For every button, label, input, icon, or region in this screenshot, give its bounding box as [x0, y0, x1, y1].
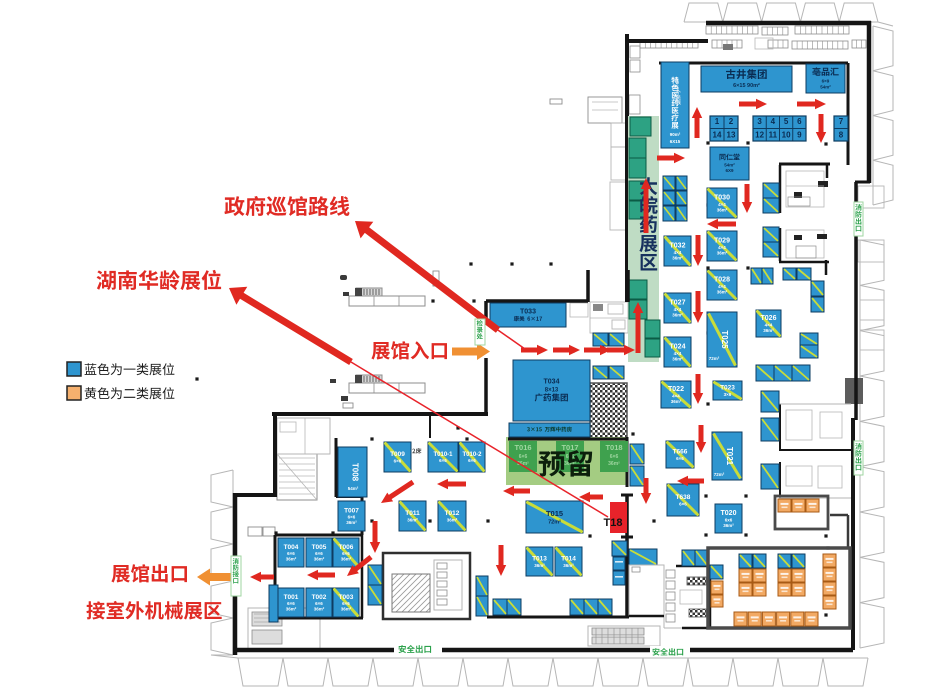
svg-text:T023: T023	[720, 385, 735, 392]
svg-text:6: 6	[797, 117, 802, 126]
svg-text:36m²: 36m²	[723, 523, 734, 528]
svg-text:T010-1: T010-1	[433, 452, 453, 458]
svg-text:4×4: 4×4	[674, 307, 682, 312]
svg-text:36m²: 36m²	[534, 563, 545, 568]
svg-text:36m²: 36m²	[717, 251, 728, 256]
svg-text:36m²: 36m²	[672, 357, 683, 362]
svg-text:T030: T030	[714, 194, 730, 201]
svg-text:72m²: 72m²	[548, 518, 561, 525]
svg-text:T024: T024	[670, 343, 686, 350]
svg-text:T003: T003	[339, 594, 354, 601]
svg-text:54m²: 54m²	[724, 162, 735, 167]
svg-text:36m²: 36m²	[346, 520, 357, 525]
svg-text:6×6: 6×6	[394, 458, 402, 463]
svg-text:T014: T014	[561, 556, 576, 563]
svg-text:T18: T18	[604, 517, 623, 529]
svg-text:T034: T034	[544, 379, 560, 386]
svg-text:2: 2	[729, 117, 734, 126]
svg-text:5: 5	[784, 117, 789, 126]
svg-text:6×6: 6×6	[287, 551, 295, 556]
svg-text:54m²: 54m²	[820, 84, 831, 89]
svg-text:T005: T005	[312, 544, 327, 551]
svg-text:36m²: 36m²	[341, 607, 352, 612]
svg-text:6×6: 6×6	[287, 601, 295, 606]
svg-text:6×9: 6×9	[822, 79, 830, 84]
svg-text:T029: T029	[714, 237, 730, 244]
svg-text:36m²: 36m²	[286, 607, 297, 612]
svg-text:6×6: 6×6	[610, 454, 619, 460]
svg-text:4×4: 4×4	[765, 322, 773, 327]
svg-text:T018: T018	[605, 443, 622, 452]
svg-text:36m²: 36m²	[563, 563, 574, 568]
svg-text:T001: T001	[284, 594, 299, 601]
svg-text:T015: T015	[546, 509, 563, 518]
svg-text:4×4: 4×4	[718, 245, 726, 250]
svg-text:T027: T027	[670, 299, 686, 306]
svg-text:T016: T016	[514, 443, 531, 452]
svg-text:6×6: 6×6	[676, 456, 684, 461]
svg-text:T032: T032	[670, 242, 686, 249]
svg-text:3×6: 3×6	[724, 392, 732, 397]
svg-text:T010-2: T010-2	[462, 452, 482, 458]
svg-text:3: 3	[757, 117, 762, 126]
svg-text:72m²: 72m²	[709, 356, 720, 361]
svg-text:36m²: 36m²	[672, 313, 683, 318]
svg-text:36m²: 36m²	[314, 557, 325, 562]
svg-text:6×6: 6×6	[679, 501, 687, 506]
svg-text:6×6: 6×6	[348, 515, 356, 520]
svg-text:36m²: 36m²	[672, 256, 683, 261]
svg-text:7: 7	[839, 117, 844, 126]
svg-text:6×6: 6×6	[315, 551, 323, 556]
svg-text:T013: T013	[532, 556, 547, 563]
svg-text:T021: T021	[725, 447, 734, 466]
svg-text:T022: T022	[668, 386, 684, 393]
svg-text:6×6: 6×6	[315, 601, 323, 606]
svg-text:36m²: 36m²	[447, 517, 458, 522]
svg-text:T025: T025	[720, 330, 729, 349]
svg-text:T026: T026	[761, 315, 777, 322]
svg-text:10: 10	[782, 130, 791, 139]
svg-text:9: 9	[797, 130, 802, 139]
svg-text:11: 11	[769, 130, 778, 139]
svg-text:6×15 90m²: 6×15 90m²	[733, 82, 760, 89]
svg-text:T638: T638	[676, 494, 691, 501]
svg-text:T002: T002	[312, 594, 327, 601]
svg-text:6×6: 6×6	[342, 601, 350, 606]
svg-text:4×4: 4×4	[718, 284, 726, 289]
svg-text:4: 4	[771, 117, 776, 126]
svg-text:36m²: 36m²	[286, 557, 297, 562]
svg-text:54m²: 54m²	[348, 486, 359, 491]
svg-text:36m²: 36m²	[608, 461, 620, 467]
svg-text:T012: T012	[445, 510, 460, 517]
svg-text:6×6: 6×6	[342, 551, 350, 556]
svg-text:T011: T011	[405, 510, 420, 517]
svg-text:8: 8	[839, 130, 844, 139]
svg-text:T008: T008	[351, 463, 360, 482]
svg-text:36m²: 36m²	[407, 517, 418, 522]
svg-text:T020: T020	[721, 510, 737, 517]
svg-text:6×6: 6×6	[519, 454, 528, 460]
svg-text:T028: T028	[714, 276, 730, 283]
svg-text:36m²: 36m²	[341, 557, 352, 562]
svg-text:13: 13	[727, 130, 736, 139]
svg-text:90m²: 90m²	[670, 132, 681, 137]
svg-text:T033: T033	[520, 309, 536, 316]
svg-text:4×4: 4×4	[674, 250, 682, 255]
svg-text:6×6: 6×6	[439, 458, 447, 463]
svg-text:36m²: 36m²	[314, 607, 325, 612]
svg-text:36m²: 36m²	[763, 328, 774, 333]
svg-text:12: 12	[755, 130, 764, 139]
svg-text:8×13: 8×13	[545, 387, 559, 393]
svg-text:T006: T006	[339, 544, 354, 551]
svg-text:6x6: 6x6	[725, 517, 733, 522]
svg-text:14: 14	[713, 130, 722, 139]
svg-text:1: 1	[715, 117, 720, 126]
svg-text:6×6: 6×6	[468, 458, 476, 463]
svg-text:4×4: 4×4	[674, 351, 682, 356]
svg-text:T009: T009	[390, 451, 405, 458]
svg-text:36m²: 36m²	[717, 290, 728, 295]
svg-text:6X9: 6X9	[725, 168, 734, 173]
svg-text:4×4: 4×4	[672, 393, 680, 398]
svg-text:4×4: 4×4	[718, 202, 726, 207]
svg-text:36m²: 36m²	[671, 399, 682, 404]
svg-text:T004: T004	[284, 544, 299, 551]
svg-text:36m²: 36m²	[717, 208, 728, 213]
svg-text:T666: T666	[673, 449, 688, 456]
svg-text:6X15: 6X15	[670, 139, 681, 144]
svg-text:T007: T007	[344, 507, 359, 514]
svg-text:72m²: 72m²	[714, 472, 725, 477]
